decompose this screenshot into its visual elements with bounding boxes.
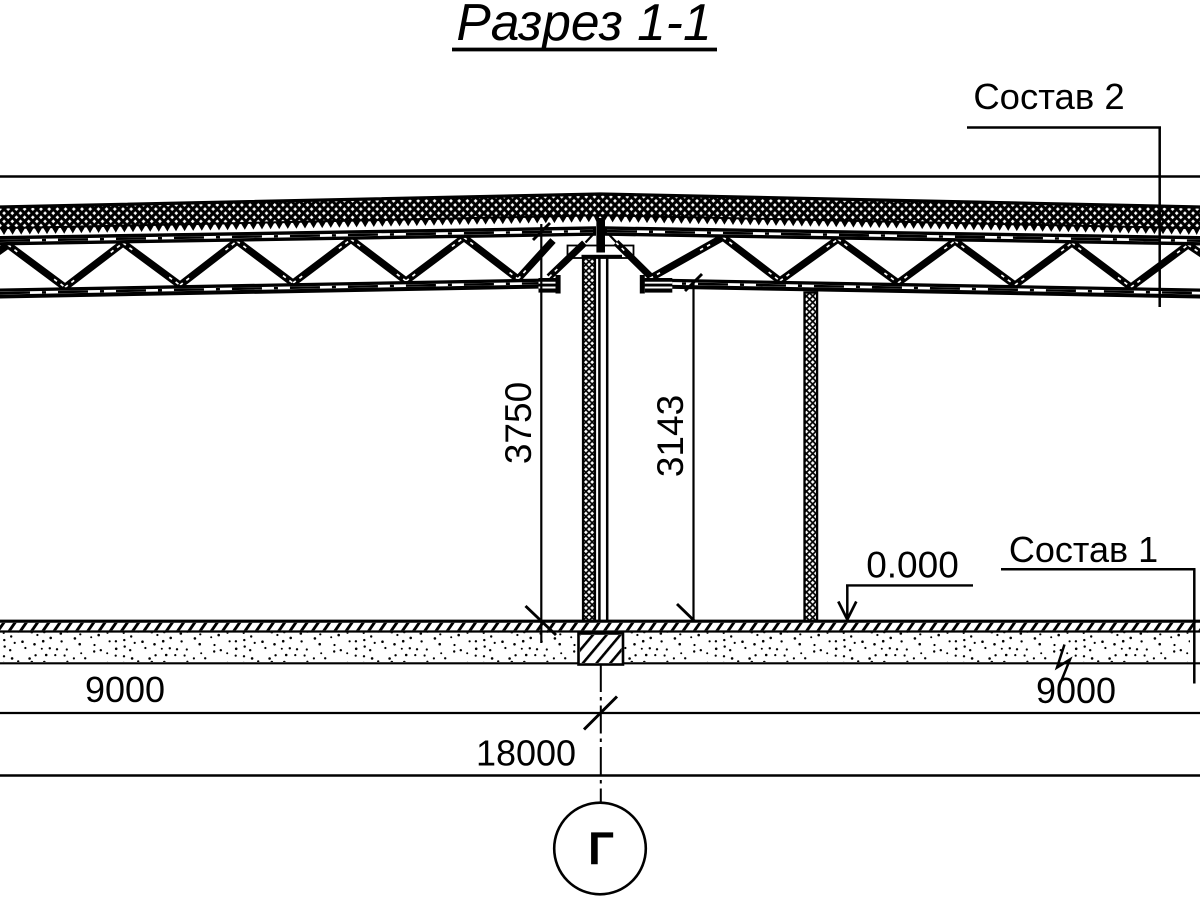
- svg-text:3750: 3750: [498, 382, 539, 464]
- svg-text:Разрез 1-1: Разрез 1-1: [456, 0, 711, 51]
- svg-text:Состав 1: Состав 1: [1009, 529, 1158, 570]
- svg-text:Состав 2: Состав 2: [973, 76, 1124, 117]
- svg-text:0.000: 0.000: [866, 545, 959, 586]
- svg-text:18000: 18000: [476, 733, 576, 774]
- svg-text:3143: 3143: [650, 395, 691, 477]
- svg-text:9000: 9000: [85, 669, 165, 710]
- svg-text:Г: Г: [588, 823, 614, 875]
- svg-text:9000: 9000: [1036, 670, 1116, 711]
